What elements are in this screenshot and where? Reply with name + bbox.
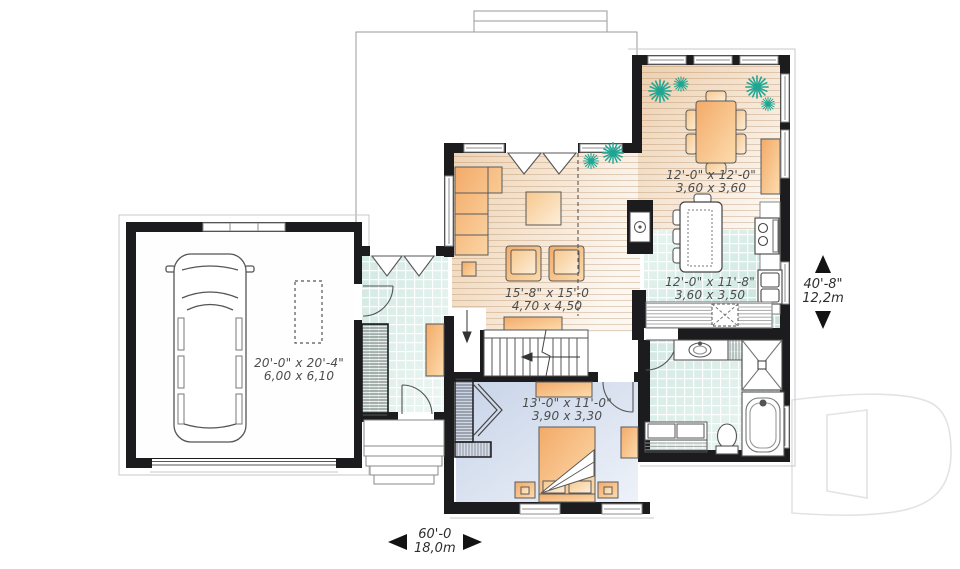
kitchen-island: [673, 194, 722, 272]
arrow-down-icon: [815, 311, 831, 329]
nightstand: [598, 482, 618, 498]
garage-window: [203, 223, 285, 231]
side-table: [462, 262, 476, 276]
floor-plan: D: [0, 0, 960, 569]
overall-depth-text: 40'-8" 12,2m: [802, 278, 844, 306]
bedroom-dimensions-label: 13'-0" x 11'-0" 3,90 x 3,30: [497, 397, 637, 423]
arrow-up-icon: [815, 255, 831, 273]
depth-metric: 12,2m: [802, 292, 844, 306]
dresser: [536, 382, 592, 397]
depth-imperial: 40'-8": [802, 278, 844, 292]
arrow-left-icon: [388, 534, 407, 550]
watermark-d: D: [792, 394, 951, 515]
plant-icon: [673, 76, 688, 91]
vanity: [674, 340, 728, 360]
plant-icon: [648, 79, 671, 102]
plant-icon: [745, 75, 768, 98]
arrow-right-icon: [463, 534, 482, 550]
kitchen-dimensions-label: 12'-0" x 11'-8" 3,60 x 3,50: [640, 276, 780, 302]
dining-dimensions-label: 12'-0" x 12'-0" 3,60 x 3,60: [641, 169, 781, 195]
console-table: [504, 317, 562, 330]
bath-bench: [645, 422, 707, 452]
kitchen-metric: 3,60 x 3,50: [640, 289, 780, 302]
armchair: [549, 246, 584, 281]
chest: [621, 427, 638, 458]
bathtub: [742, 392, 784, 456]
plant-icon: [602, 142, 624, 164]
garage-metric: 6,00 x 6,10: [229, 370, 369, 383]
living-metric: 4,70 x 4,50: [477, 300, 617, 313]
width-metric: 18,0m: [414, 542, 456, 556]
overall-width-dimension: 60'-0 18,0m: [388, 528, 482, 556]
coffee-table: [526, 192, 561, 225]
kitchen-counter-bottom: [646, 302, 772, 328]
linen-closet: [728, 340, 742, 360]
armchair: [506, 246, 541, 281]
living-dimensions-label: 15'-8" x 15'-0 4,70 x 4,50: [477, 287, 617, 313]
plant-icon: [761, 97, 775, 111]
fireplace: [627, 200, 653, 254]
bed: [539, 427, 595, 502]
porch-steps: [364, 420, 444, 484]
overall-depth-dimension: 40'-8" 12,2m: [797, 255, 849, 329]
nightstand: [515, 482, 535, 498]
garage-dimensions-label: 20'-0" x 20'-4" 6,00 x 6,10: [229, 357, 369, 383]
stove-icon: [755, 218, 779, 254]
width-imperial: 60'-0: [414, 528, 456, 542]
dining-metric: 3,60 x 3,60: [641, 182, 781, 195]
shower: [742, 340, 782, 390]
car-icon: [166, 254, 254, 442]
plant-icon: [583, 153, 599, 169]
bedroom-metric: 3,90 x 3,30: [497, 410, 637, 423]
overall-width-text: 60'-0 18,0m: [414, 528, 456, 556]
toilet-icon: [716, 424, 738, 454]
entry-bench: [426, 324, 444, 376]
